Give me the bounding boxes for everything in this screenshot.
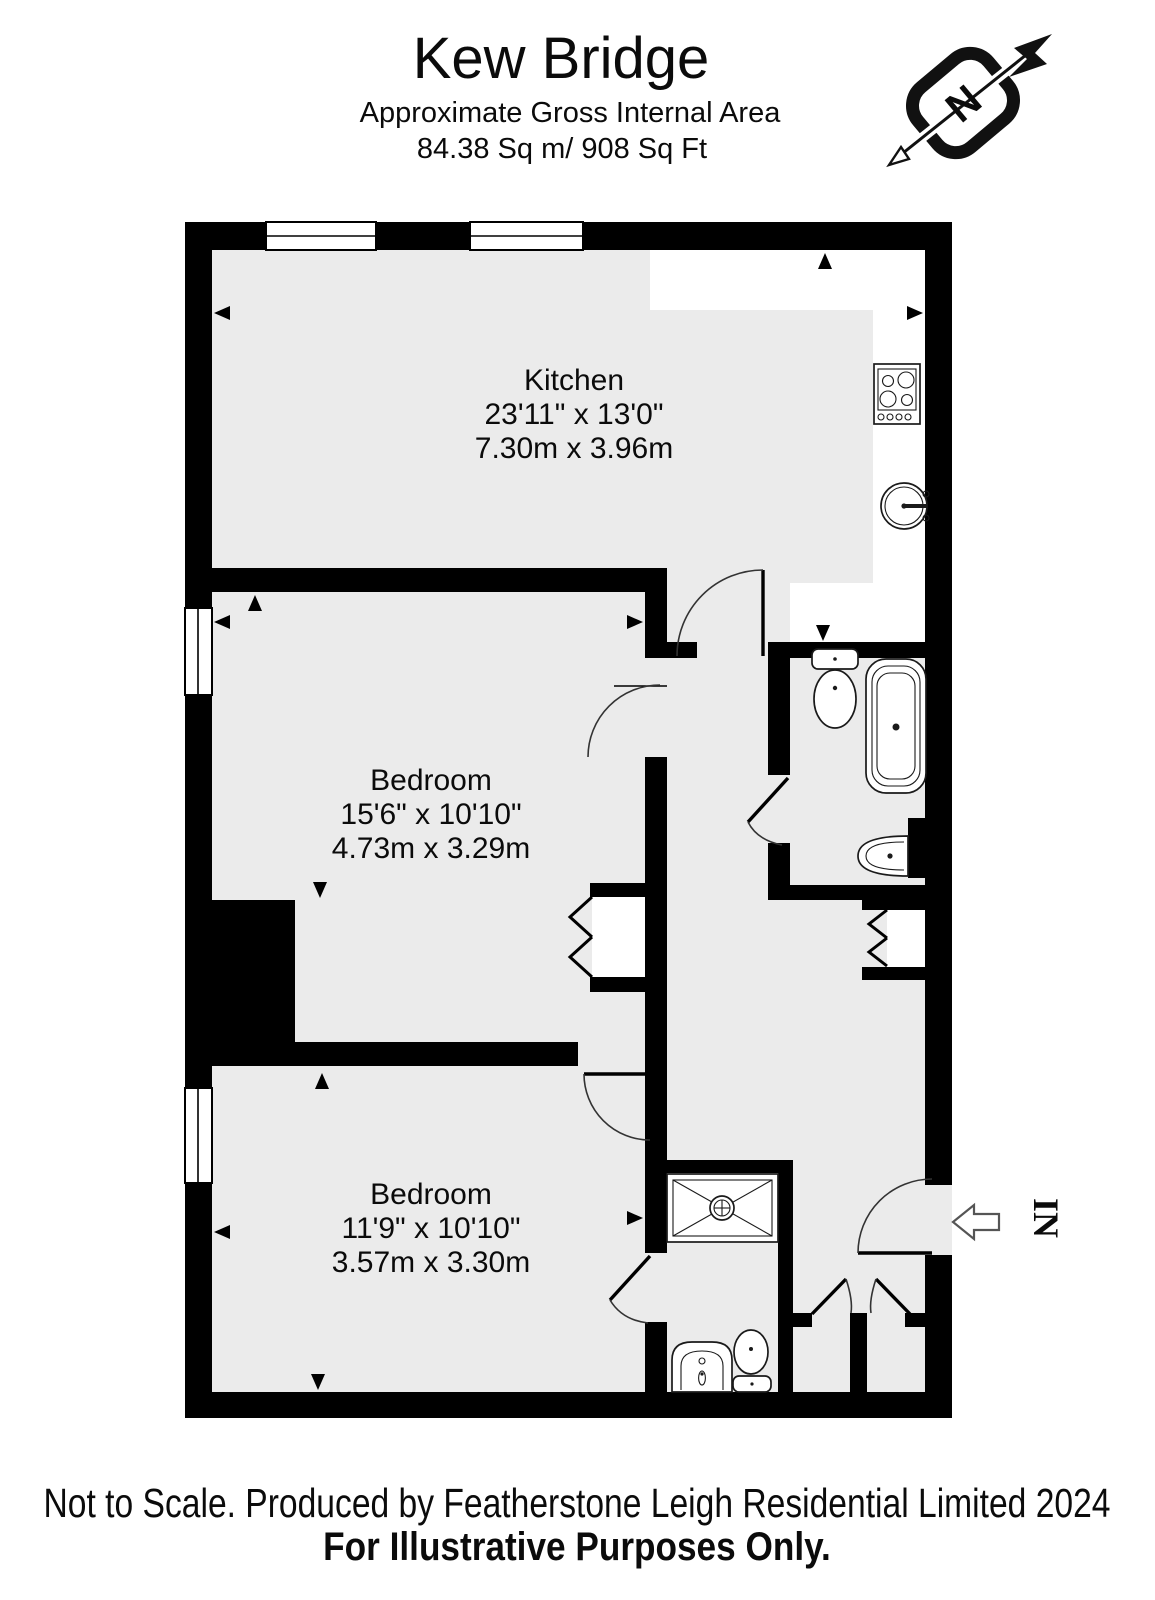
bedroom1-dims-metric: 4.73m x 3.29m	[332, 832, 530, 865]
bedroom2-name: Bedroom	[370, 1178, 492, 1211]
footer: Not to Scale. Produced by Featherstone L…	[44, 1480, 1111, 1569]
toilet-icon	[733, 1330, 771, 1392]
window	[185, 608, 212, 695]
subtitle-area: Approximate Gross Internal Area	[360, 97, 782, 129]
window	[470, 222, 583, 250]
subtitle-size: 84.38 Sq m/ 908 Sq Ft	[417, 133, 707, 165]
wash-basin-icon	[672, 1342, 732, 1392]
entrance-indicator: IN	[953, 1198, 1066, 1239]
window	[266, 222, 376, 250]
entrance-label: IN	[1026, 1198, 1066, 1238]
bedroom2-dims-metric: 3.57m x 3.30m	[332, 1246, 530, 1279]
floor-plan: Kew Bridge Approximate Gross Internal Ar…	[0, 0, 1155, 1600]
bedroom1-name: Bedroom	[370, 764, 492, 797]
entrance-arrow-icon	[953, 1205, 999, 1239]
window	[185, 1088, 212, 1183]
kitchen-dims-imperial: 23'11" x 13'0"	[485, 398, 664, 431]
bedroom2-dims-imperial: 11'9" x 10'10"	[342, 1212, 521, 1245]
kitchen-counter-area	[650, 250, 925, 310]
hob-icon	[874, 364, 920, 424]
shower-tray-icon	[667, 1174, 778, 1242]
bathtub-icon	[866, 659, 926, 793]
chimney-breast	[212, 900, 295, 1066]
kitchen-dims-metric: 7.30m x 3.96m	[475, 432, 673, 465]
page-title: Kew Bridge	[413, 26, 710, 91]
kitchen-name: Kitchen	[524, 364, 624, 397]
toilet-icon	[812, 649, 858, 728]
bedroom1-dims-imperial: 15'6" x 10'10"	[340, 798, 521, 831]
compass-arrow-fletching	[1009, 34, 1052, 77]
bedroom-closet-interior	[592, 897, 645, 977]
footer-disclaimer: Not to Scale. Produced by Featherstone L…	[44, 1480, 1111, 1526]
footer-illustrative-note: For Illustrative Purposes Only.	[323, 1524, 831, 1569]
airing-cupboard-interior	[887, 910, 925, 967]
header: Kew Bridge Approximate Gross Internal Ar…	[360, 26, 782, 165]
compass-icon: N	[889, 34, 1052, 165]
